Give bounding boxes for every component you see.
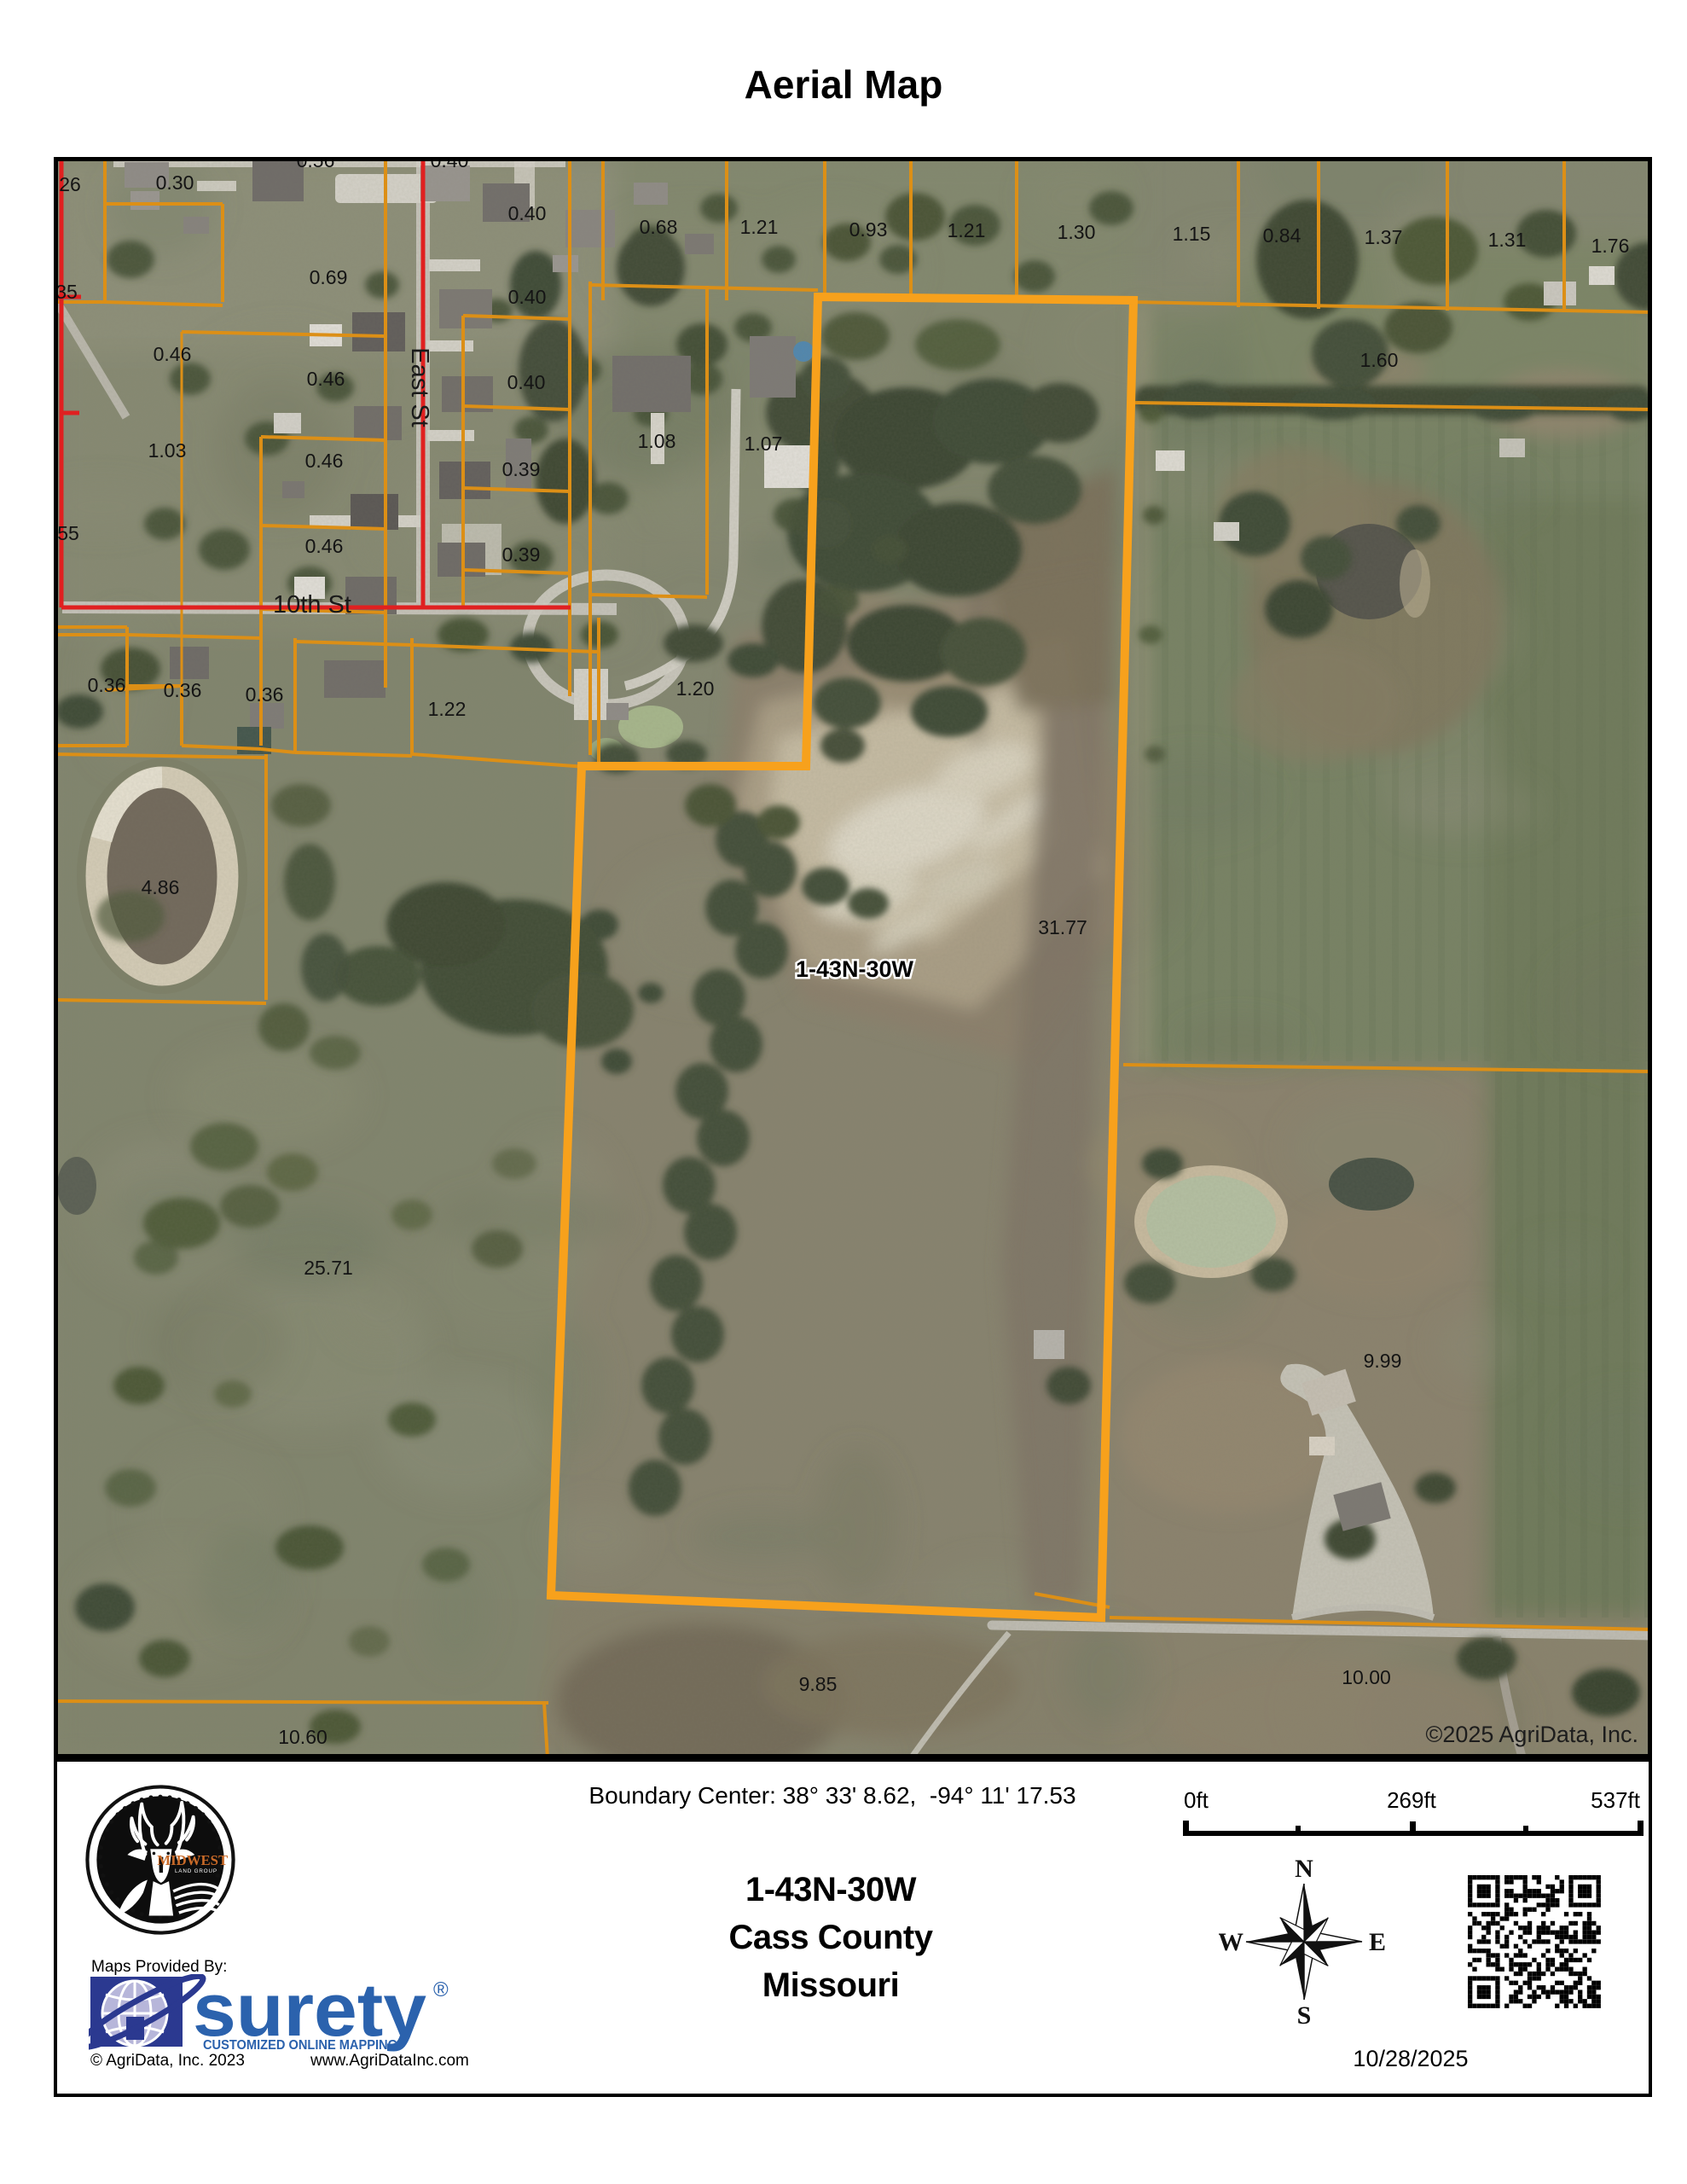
svg-text:1.08: 1.08	[638, 430, 676, 452]
svg-text:1-43N-30W: 1-43N-30W	[796, 956, 914, 982]
svg-text:537ft: 537ft	[1591, 1787, 1641, 1813]
svg-text:31.77: 31.77	[1038, 916, 1087, 938]
svg-text:1.07: 1.07	[745, 433, 783, 455]
svg-text:1.31: 1.31	[1488, 229, 1527, 251]
svg-text:1.76: 1.76	[1591, 235, 1630, 257]
svg-text:0.40: 0.40	[507, 371, 546, 393]
svg-text:0.39: 0.39	[502, 458, 541, 480]
svg-text:10th St: 10th St	[273, 591, 351, 619]
svg-text:0.40: 0.40	[508, 202, 547, 224]
svg-text:1.03: 1.03	[148, 439, 187, 462]
svg-text:1.30: 1.30	[1058, 221, 1096, 243]
svg-text:35: 35	[55, 281, 78, 303]
svg-text:0.36: 0.36	[246, 683, 284, 706]
svg-text:0.36: 0.36	[164, 679, 202, 701]
svg-text:1.21: 1.21	[948, 219, 986, 241]
svg-text:26: 26	[59, 173, 81, 195]
svg-text:1.21: 1.21	[740, 216, 779, 238]
svg-text:55: 55	[57, 522, 79, 544]
svg-text:0ft: 0ft	[1184, 1787, 1209, 1813]
svg-text:0.46: 0.46	[307, 368, 345, 390]
svg-text:CUSTOMIZED ONLINE MAPPING: CUSTOMIZED ONLINE MAPPING	[203, 2038, 397, 2053]
svg-text:9.85: 9.85	[799, 1673, 838, 1695]
svg-text:MIDWEST: MIDWEST	[157, 1852, 228, 1868]
svg-text:0.40: 0.40	[508, 286, 547, 308]
svg-text:E: E	[1369, 1928, 1386, 1956]
svg-text:1.15: 1.15	[1173, 223, 1211, 245]
svg-text:9.99: 9.99	[1364, 1350, 1402, 1372]
svg-text:10.60: 10.60	[278, 1726, 328, 1748]
svg-text:S: S	[1297, 2001, 1312, 2027]
svg-text:0.46: 0.46	[154, 343, 192, 365]
svg-text:4.86: 4.86	[142, 876, 180, 898]
svg-text:0.68: 0.68	[640, 216, 678, 238]
svg-text:1.60: 1.60	[1360, 349, 1399, 371]
svg-text:269ft: 269ft	[1387, 1787, 1437, 1813]
svg-text:1.20: 1.20	[676, 677, 715, 700]
svg-text:25.71: 25.71	[304, 1257, 353, 1279]
svg-text:W: W	[1219, 1928, 1244, 1956]
svg-text:0.46: 0.46	[305, 535, 344, 557]
svg-text:0.30: 0.30	[156, 171, 194, 194]
svg-text:10.00: 10.00	[1342, 1666, 1391, 1688]
svg-text:0.46: 0.46	[305, 450, 344, 472]
svg-text:0.84: 0.84	[1263, 224, 1301, 247]
svg-text:LAND GROUP: LAND GROUP	[175, 1868, 217, 1874]
svg-text:®: ®	[433, 1978, 449, 2001]
svg-text:1.37: 1.37	[1365, 226, 1403, 248]
svg-text:1.22: 1.22	[428, 698, 467, 720]
svg-text:0.39: 0.39	[502, 543, 541, 566]
svg-text:N: N	[1295, 1856, 1313, 1883]
svg-text:0.93: 0.93	[849, 218, 888, 241]
svg-text:0.36: 0.36	[88, 674, 126, 696]
svg-text:©2025 AgriData, Inc.: ©2025 AgriData, Inc.	[1425, 1722, 1638, 1747]
svg-text:0.69: 0.69	[310, 266, 348, 288]
svg-text:East St: East St	[406, 347, 433, 427]
